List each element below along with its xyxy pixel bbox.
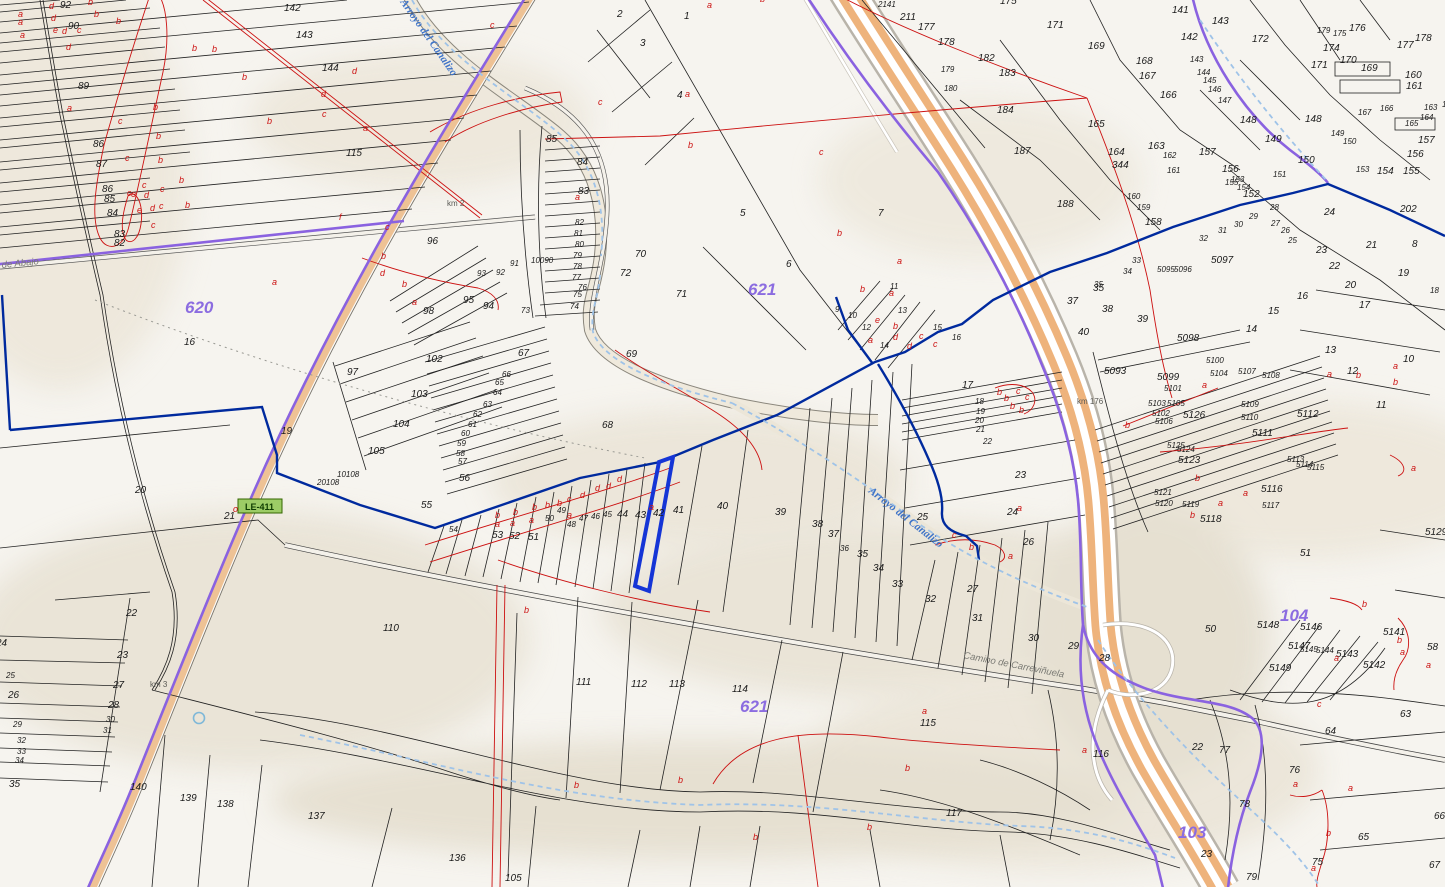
parcel-number-label: 211 (899, 12, 916, 23)
parcel-number-label: 33 (892, 579, 904, 590)
parcel-number-label: 32 (925, 594, 937, 605)
subparcel-letter-label: a (649, 502, 654, 512)
subparcel-letter-label: b (753, 832, 758, 842)
subparcel-letter-label: a (1293, 779, 1298, 789)
parcel-number-label: 29 (1248, 212, 1258, 221)
parcel-number-label: 75 (573, 290, 582, 299)
subparcel-letter-label: b (1356, 370, 1361, 380)
subparcel-letter-label: a (20, 30, 25, 40)
zone-number-label: 621 (748, 280, 776, 299)
subparcel-letter-label: b (837, 228, 842, 238)
parcel-number-label: 177 (918, 22, 935, 33)
parcel-number-label: 25 (5, 671, 15, 680)
parcel-number-label: 65 (1358, 832, 1370, 843)
parcel-number-label: 110 (383, 623, 399, 634)
subparcel-letter-label: b (997, 387, 1002, 397)
parcel-number-label: 89 (78, 81, 90, 92)
parcel-number-label: 143 (1212, 16, 1229, 27)
parcel-number-label: 34 (1123, 267, 1132, 276)
parcel-number-label: 156 (1407, 149, 1424, 160)
subparcel-letter-label: a (685, 89, 690, 99)
subparcel-letter-label: b (524, 605, 529, 615)
subparcel-letter-label: b (1010, 401, 1015, 411)
parcel-number-label: 33 (1132, 256, 1141, 265)
subparcel-letter-label: a (412, 297, 417, 307)
parcel-number-label: 33 (17, 747, 26, 756)
parcel-number-label: 63 (1400, 709, 1412, 720)
subparcel-letter-label: b (557, 498, 562, 508)
parcel-number-label: 5116 (1261, 484, 1283, 495)
subparcel-letter-label: d (380, 268, 386, 278)
parcel-number-label: 20 (1344, 280, 1357, 291)
parcel-number-label: 82 (114, 238, 126, 249)
subparcel-letter-label: b (513, 507, 518, 517)
parcel-number-label: 58 (1427, 642, 1439, 653)
parcel-number-label: 5110 (1241, 413, 1259, 422)
subparcel-letter-label: a (18, 17, 23, 27)
parcel-number-label: 168 (1136, 56, 1153, 67)
parcel-number-label: 174 (1323, 43, 1340, 54)
parcel-number-label: 56 (459, 473, 471, 484)
km-marker-label: km 2 (447, 199, 465, 208)
parcel-number-label: 77 (1219, 745, 1231, 756)
parcel-number-label: 64 (493, 388, 502, 397)
parcel-number-label: 67 (1429, 860, 1441, 871)
parcel-number-label: 151 (1273, 170, 1286, 179)
parcel-number-label: 79 (1246, 872, 1258, 883)
subparcel-letter-label: c (1025, 392, 1030, 402)
parcel-number-label: 10090 (531, 256, 554, 265)
parcel-number-label: 34 (15, 756, 24, 765)
parcel-number-label: 10 (1403, 354, 1415, 365)
parcel-number-label: 103 (411, 389, 428, 400)
parcel-number-label: 9 (835, 305, 840, 314)
parcel-number-label: 72 (620, 268, 632, 279)
subparcel-letter-label: b (158, 155, 163, 165)
parcel-number-label: 26 (1022, 537, 1035, 548)
subparcel-letter-label: d (907, 341, 913, 351)
parcel-number-label: 40 (717, 501, 729, 512)
parcel-number-label: 10108 (337, 470, 360, 479)
subparcel-letter-label: a (495, 519, 500, 529)
subparcel-letter-label: b (179, 175, 184, 185)
subparcel-letter-label: c (567, 494, 572, 504)
parcel-number-label: 176 (1349, 23, 1366, 34)
parcel-number-label: 20 (974, 416, 984, 425)
subparcel-letter-label: a (363, 123, 368, 133)
cadastral-map[interactable]: Arroyo del Canalizo Arroyo del Canalizo … (0, 0, 1445, 887)
parcel-number-label: 21 (1365, 240, 1377, 251)
parcel-number-label: 19 (1398, 268, 1410, 279)
parcel-number-label: 171 (1311, 60, 1328, 71)
parcel-number-label: 31 (972, 613, 983, 624)
subparcel-letter-label: b (94, 9, 99, 19)
parcel-number-label: 70 (635, 249, 647, 260)
subparcel-letter-label: c (385, 222, 390, 232)
subparcel-letter-label: b (192, 43, 197, 53)
subparcel-letter-label: o (233, 504, 238, 514)
parcel-number-label: 95 (463, 295, 475, 306)
subparcel-letter-label: c (1016, 386, 1021, 396)
parcel-number-label: 38 (812, 519, 824, 530)
parcel-number-label: 5129 (1425, 527, 1445, 538)
parcel-number-label: 32 (1199, 234, 1208, 243)
parcel-number-label: 155 (1403, 166, 1420, 177)
parcel-number-label: 51 (528, 532, 539, 543)
parcel-number-label: 166 (1380, 104, 1394, 113)
parcel-number-label: 23 (1014, 470, 1027, 481)
parcel-number-label: 45 (603, 510, 612, 519)
parcel-number-label: 5149 (1269, 663, 1292, 674)
subparcel-letter-label: a (1426, 660, 1431, 670)
parcel-number-label: 34 (873, 563, 885, 574)
parcel-number-label: 163 (1424, 103, 1438, 112)
subparcel-letter-label: b (867, 822, 872, 832)
cadastral-map-viewport[interactable]: Arroyo del Canalizo Arroyo del Canalizo … (0, 0, 1445, 887)
subparcel-letter-label: b (905, 763, 910, 773)
parcel-number-label: 182 (978, 53, 995, 64)
parcel-number-label: 157 (1418, 135, 1435, 146)
subparcel-letter-label: b (860, 284, 865, 294)
parcel-number-label: 74 (570, 302, 579, 311)
parcel-number-label: 5109 (1241, 400, 1259, 409)
terrain-shading (0, 0, 1445, 870)
parcel-number-label: 91 (510, 259, 519, 268)
subparcel-letter-label: a (1334, 653, 1339, 663)
parcel-number-label: 17 (962, 380, 974, 391)
parcel-number-label: 10 (848, 311, 857, 320)
parcel-number-label: 5125 (1167, 441, 1185, 450)
subparcel-letter-label: e (53, 25, 58, 35)
parcel-number-label: 65 (495, 378, 504, 387)
parcel-number-label: 170 (1340, 55, 1357, 66)
parcel-number-label: 29 (1067, 641, 1080, 652)
parcel-number-label: 5119 (1182, 500, 1200, 509)
zone-number-label: 103 (1178, 823, 1207, 842)
parcel-number-label: 51 (1300, 548, 1311, 559)
parcel-number-label: 5105 (1167, 399, 1185, 408)
subparcel-letter-label: c (151, 220, 156, 230)
parcel-number-label: 165 (1405, 119, 1419, 128)
parcel-number-label: 150 (1298, 155, 1315, 166)
subparcel-letter-label: c (322, 109, 327, 119)
parcel-number-label: 161 (1406, 81, 1423, 92)
parcel-number-label: 27 (966, 584, 979, 595)
parcel-number-label: 5144 (1316, 646, 1334, 655)
parcel-number-label: 157 (1199, 147, 1216, 158)
parcel-number-label: 5111 (1252, 428, 1273, 439)
subparcel-letter-label: b (185, 200, 190, 210)
subparcel-letter-label: b (153, 102, 158, 112)
parcel-number-label: 19 (281, 426, 293, 437)
parcel-number-label: 7 (878, 208, 884, 219)
road-sign-le411-label: LE-411 (245, 502, 274, 512)
subparcel-letter-label: c (819, 147, 824, 157)
parcel-number-label: 84 (107, 208, 119, 219)
parcel-number-label: 39 (775, 507, 787, 518)
parcel-number-label: 136 (449, 853, 466, 864)
subparcel-letter-label: a (1311, 863, 1316, 873)
parcel-number-label: 63 (483, 400, 492, 409)
parcel-number-label: 1 (684, 11, 690, 22)
parcel-number-label: 57 (458, 457, 467, 466)
parcel-number-label: 165 (1088, 119, 1105, 130)
parcel-number-label: 147 (1218, 96, 1232, 105)
parcel-number-label: 61 (468, 420, 477, 429)
parcel-number-label: 41 (673, 505, 684, 516)
subparcel-letter-label: c (159, 201, 164, 211)
subparcel-letter-label: a (575, 192, 580, 202)
parcel-number-label: 149 (1265, 134, 1282, 145)
parcel-number-label: 44 (617, 509, 629, 520)
parcel-number-label: 183 (999, 68, 1016, 79)
parcel-number-label: 30 (1028, 633, 1040, 644)
zone-number-label: 104 (1280, 606, 1309, 625)
parcel-number-label: 62 (473, 410, 482, 419)
subparcel-letter-label: a (529, 515, 534, 525)
parcel-number-label: 38 (1102, 304, 1114, 315)
subparcel-letter-label: e (137, 205, 142, 215)
parcel-number-label: 36 (840, 544, 849, 553)
parcel-number-label: 5126 (1183, 410, 1206, 421)
parcel-number-label: 150 (1343, 137, 1357, 146)
parcel-number-label: 5120 (1155, 499, 1173, 508)
parcel-number-label: 16 (952, 333, 961, 342)
subparcel-letter-label: b (402, 279, 407, 289)
parcel-number-label: 28 (1269, 203, 1279, 212)
parcel-number-label: 148 (1240, 115, 1257, 126)
parcel-number-label: 32 (17, 736, 26, 745)
subparcel-letter-label: a (1348, 783, 1353, 793)
parcel-number-label: 67 (518, 348, 530, 359)
parcel-number-label: 18 (1430, 286, 1439, 295)
parcel-number-label: 105 (505, 873, 522, 884)
parcel-number-label: 167 (1139, 71, 1156, 82)
parcel-number-label: 172 (1252, 34, 1269, 45)
subparcel-letter-label: b (1019, 405, 1024, 415)
parcel-number-label: 80 (575, 240, 584, 249)
parcel-number-label: 5096 (1174, 265, 1192, 274)
parcel-number-label: 112 (631, 679, 647, 690)
parcel-number-label: 5099 (1157, 372, 1180, 383)
parcel-number-label: 160 (1405, 70, 1422, 81)
parcel-number-label: 64 (1325, 726, 1337, 737)
parcel-number-label: 16 (1297, 291, 1309, 302)
subparcel-letter-label: a (889, 288, 894, 298)
parcel-number-label: 47 (579, 514, 588, 523)
parcel-number-label: 27 (112, 680, 125, 691)
parcel-number-label: 25 (1287, 236, 1297, 245)
subparcel-letter-label: b (545, 500, 550, 510)
km-marker-label: km 176 (1077, 397, 1104, 406)
parcel-number-label: 5112 (1297, 409, 1319, 420)
parcel-number-label: 79 (573, 251, 582, 260)
parcel-number-label: 96 (427, 236, 439, 247)
parcel-number-label: 167 (1358, 108, 1372, 117)
parcel-number-label: 77 (572, 273, 581, 282)
parcel-number-label: 161 (1167, 166, 1180, 175)
subparcel-letter-label: b (678, 775, 683, 785)
parcel-number-label: 73 (521, 306, 530, 315)
parcel-number-label: 27 (1270, 219, 1280, 228)
parcel-number-label: 30 (1234, 220, 1243, 229)
subparcel-letter-label: a (1082, 745, 1087, 755)
subparcel-letter-label: a (1017, 503, 1022, 513)
parcel-number-label: 22 (982, 437, 992, 446)
subparcel-letter-label: b (381, 251, 386, 261)
parcel-number-label: 78 (1239, 799, 1251, 810)
subparcel-letter-label: c (118, 116, 123, 126)
parcel-number-label: 179 (941, 65, 955, 74)
subparcel-letter-label: c (598, 97, 603, 107)
parcel-number-label: 5148 (1257, 620, 1280, 631)
parcel-number-label: 93 (477, 269, 486, 278)
subparcel-letter-label: a (67, 103, 72, 113)
subparcel-letter-label: b (88, 0, 93, 7)
parcel-number-label: 20108 (316, 478, 340, 487)
parcel-number-label: 13 (898, 306, 907, 315)
parcel-number-label: 22 (125, 608, 138, 619)
parcel-number-label: 5142 (1363, 660, 1386, 671)
parcel-number-label: 178 (938, 37, 955, 48)
subparcel-letter-label: b (1190, 510, 1195, 520)
subparcel-letter-label: b (532, 502, 537, 512)
parcel-number-label: 187 (1014, 146, 1031, 157)
parcel-number-label: 15 (933, 323, 942, 332)
parcel-number-label: 24 (1323, 207, 1336, 218)
parcel-number-label: 166 (1160, 90, 1177, 101)
parcel-number-label: 2141 (877, 0, 896, 9)
parcel-number-label: 55 (421, 500, 433, 511)
parcel-number-label: 5095 (1157, 265, 1175, 274)
parcel-number-label: 13 (1325, 345, 1337, 356)
parcel-number-label: 169 (1088, 41, 1105, 52)
parcel-number-label: 5104 (1210, 369, 1228, 378)
subparcel-letter-label: a (1218, 498, 1223, 508)
parcel-number-label: 144 (322, 63, 339, 74)
parcel-number-label: 164 (1108, 147, 1125, 158)
subparcel-letter-label: b (156, 131, 161, 141)
parcel-number-label: 143 (296, 30, 313, 41)
subparcel-letter-label: a (1008, 551, 1013, 561)
subparcel-letter-label: a (1243, 488, 1248, 498)
parcel-number-label: 3 (640, 38, 646, 49)
parcel-number-label: 184 (997, 105, 1014, 116)
subparcel-letter-label: c (919, 331, 924, 341)
subparcel-letter-label: a (707, 0, 712, 10)
parcel-number-label: 60 (461, 429, 470, 438)
parcel-number-label: 115 (920, 718, 936, 729)
parcel-number-label: 159 (1137, 203, 1151, 212)
km-marker-label: km 3 (150, 680, 168, 689)
parcel-number-label: 46 (591, 512, 600, 521)
subparcel-letter-label: a (567, 510, 572, 520)
subparcel-letter-label: c (490, 20, 495, 30)
subparcel-letter-label: a (510, 518, 515, 528)
parcel-number-label: 39 (1137, 314, 1149, 325)
parcel-number-label: 153 (1356, 165, 1370, 174)
subparcel-letter-label: b (1004, 393, 1009, 403)
parcel-number-label: 26 (7, 690, 20, 701)
parcel-number-label: 35 (857, 549, 869, 560)
subparcel-letter-label: b (760, 0, 765, 4)
parcel-number-label: 111 (576, 677, 591, 688)
parcel-number-label: 145 (1203, 76, 1217, 85)
parcel-number-label: 152 (1243, 189, 1260, 200)
parcel-number-label: 177 (1397, 40, 1414, 51)
parcel-number-label: 6 (786, 259, 792, 270)
parcel-number-label: 158 (1145, 217, 1162, 228)
parcel-number-label: 20 (134, 485, 147, 496)
parcel-number-label: 31 (103, 726, 112, 735)
parcel-number-label: 48 (567, 520, 576, 529)
subparcel-letter-label: b (116, 16, 121, 26)
parcel-number-label: 69 (626, 349, 638, 360)
parcel-number-label: 35 (9, 779, 21, 790)
parcel-number-label: 164 (1420, 113, 1434, 122)
parcel-number-label: 116 (1093, 749, 1109, 760)
parcel-number-label: 81 (574, 229, 583, 238)
parcel-number-label: 137 (308, 811, 325, 822)
parcel-number-label: 37 (1067, 296, 1079, 307)
subparcel-letter-label: a (1327, 369, 1332, 379)
parcel-number-label: 117 (946, 808, 962, 819)
parcel-number-label: 160 (1127, 192, 1141, 201)
parcel-number-label: 162 (1163, 151, 1177, 160)
subparcel-letter-label: c (142, 180, 147, 190)
parcel-number-label: 139 (180, 793, 197, 804)
parcel-number-label: 84 (577, 157, 589, 168)
parcel-number-label: 5115 (1307, 463, 1325, 472)
parcel-number-label: 16 (184, 337, 196, 348)
zone-number-label: 621 (740, 697, 768, 716)
parcel-number-label: 28 (107, 700, 120, 711)
parcel-number-label: 5108 (1262, 371, 1280, 380)
parcel-number-label: 5103 (1148, 399, 1166, 408)
parcel-number-label: 115 (346, 148, 362, 159)
parcel-number-label: 5121 (1154, 488, 1172, 497)
subparcel-letter-label: b (212, 44, 217, 54)
parcel-number-label: 12 (862, 323, 871, 332)
subparcel-letter-label: b (267, 116, 272, 126)
parcel-number-label: 15 (1268, 306, 1280, 317)
subparcel-letter-label: a (1411, 463, 1416, 473)
parcel-number-label: 140 (130, 782, 147, 793)
parcel-number-label: 8 (1412, 239, 1418, 250)
parcel-number-label: 5106 (1155, 417, 1173, 426)
road-sign-le411: LE-411 (238, 499, 282, 513)
parcel-number-label: 76 (1289, 765, 1301, 776)
parcel-number-label: 85 (546, 134, 558, 145)
parcel-number-label: 50 (1205, 624, 1217, 635)
subparcel-letter-label: e (875, 315, 880, 325)
parcel-number-label: 14 (1246, 324, 1258, 335)
subparcel-letter-label: c (933, 339, 938, 349)
parcel-number-label: 154 (1377, 166, 1394, 177)
parcel-number-label: 98 (423, 306, 435, 317)
parcel-number-label: 11 (1376, 400, 1386, 411)
subparcel-letter-label: a (272, 277, 277, 287)
parcel-number-label: 138 (217, 799, 234, 810)
parcel-number-label: 188 (1057, 199, 1074, 210)
subparcel-letter-label: c (125, 153, 130, 163)
parcel-number-label: 180 (944, 84, 958, 93)
parcel-number-label: 171 (1047, 20, 1064, 31)
subparcel-letter-label: a (1202, 380, 1207, 390)
parcel-number-label: 17 (1359, 300, 1371, 311)
parcel-number-label: 35 (1094, 280, 1103, 289)
parcel-number-label: 71 (676, 289, 687, 300)
